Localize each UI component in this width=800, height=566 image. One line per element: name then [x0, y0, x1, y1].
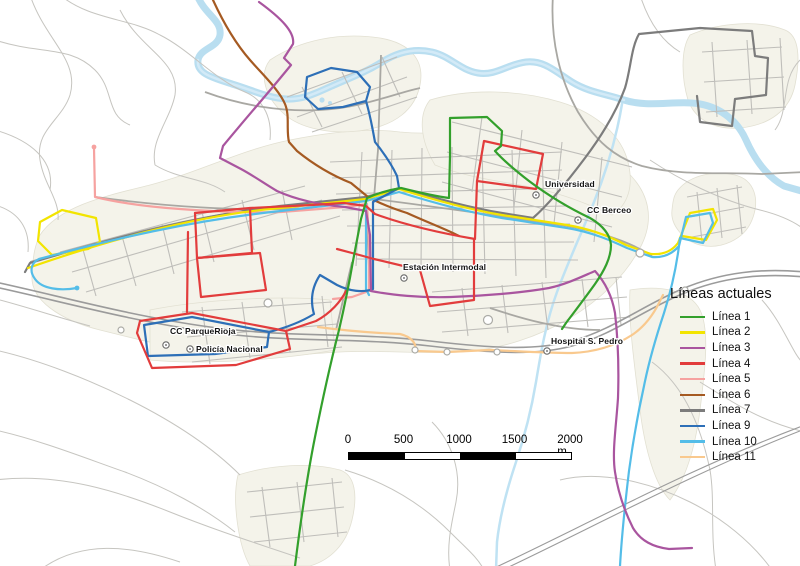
- scale-bar-graphic: [348, 452, 572, 460]
- legend-item-linea-6: Línea 6: [668, 387, 800, 403]
- map-canvas: UniversidadCC BerceoEstación IntermodalH…: [0, 0, 800, 566]
- linea-1-swatch: [680, 316, 705, 319]
- place-marker-dot-0: [535, 194, 537, 196]
- linea-4-label: Línea 4: [712, 358, 750, 370]
- legend-title: Líneas actuales: [670, 286, 800, 302]
- linea-9-swatch: [680, 425, 705, 428]
- legend-item-linea-2: Línea 2: [668, 325, 800, 341]
- scale-tick-0: 0: [345, 434, 351, 446]
- scale-bar-labels: 0500100015002000 m: [342, 434, 592, 448]
- legend-item-linea-7: Línea 7: [668, 403, 800, 419]
- place-label: Estación Intermodal: [403, 262, 486, 272]
- scale-segment-0: [349, 453, 405, 459]
- legend-item-linea-1: Línea 1: [668, 309, 800, 325]
- scale-tick-1000: 1000: [446, 434, 472, 446]
- linea-4-swatch: [680, 362, 705, 365]
- linea-3-label: Línea 3: [712, 342, 750, 354]
- scale-bar: 0500100015002000 m: [342, 434, 592, 466]
- linea-9-label: Línea 9: [712, 420, 750, 432]
- linea-10-terminus-dot: [75, 286, 80, 291]
- linea-10-label: Línea 10: [712, 436, 757, 448]
- legend-item-linea-4: Línea 4: [668, 356, 800, 372]
- linea-5-swatch: [680, 378, 705, 381]
- linea-2-swatch: [680, 331, 705, 334]
- legend-item-linea-5: Línea 5: [668, 371, 800, 387]
- place-marker-dot-5: [189, 348, 191, 350]
- linea-2-label: Línea 2: [712, 326, 750, 338]
- linea-5-label: Línea 5: [712, 373, 750, 385]
- linea-7-label: Línea 7: [712, 404, 750, 416]
- legend-item-linea-10: Línea 10: [668, 434, 800, 450]
- legend-item-linea-3: Línea 3: [668, 340, 800, 356]
- place-marker-dot-4: [165, 344, 167, 346]
- place-label: CC Berceo: [587, 205, 631, 215]
- linea-1-label: Línea 1: [712, 311, 750, 323]
- place-marker-dot-2: [403, 277, 405, 279]
- place-label: Universidad: [545, 179, 595, 189]
- scale-tick-500: 500: [394, 434, 413, 446]
- linea-4-path-5: [187, 232, 188, 312]
- linea-11-swatch: [680, 456, 705, 459]
- legend-item-linea-11: Línea 11: [668, 449, 800, 465]
- linea-5-terminus-dot: [92, 145, 97, 150]
- scale-segment-1: [405, 453, 461, 459]
- linea-3-swatch: [680, 347, 705, 350]
- scale-segment-3: [516, 453, 572, 459]
- linea-6-swatch: [680, 394, 705, 397]
- legend-items: Línea 1Línea 2Línea 3Línea 4Línea 5Línea…: [668, 309, 800, 465]
- place-marker-dot-1: [577, 219, 579, 221]
- scale-segment-2: [460, 453, 516, 459]
- legend: Líneas actuales Línea 1Línea 2Línea 3Lín…: [668, 286, 800, 465]
- linea-6-label: Línea 6: [712, 389, 750, 401]
- place-label: Hospital S. Pedro: [551, 336, 623, 346]
- place-label: Policía Nacional: [196, 344, 263, 354]
- linea-11-label: Línea 11: [712, 451, 756, 463]
- scale-tick-1500: 1500: [502, 434, 528, 446]
- map-svg: UniversidadCC BerceoEstación IntermodalH…: [0, 0, 800, 566]
- linea-7-swatch: [680, 409, 705, 412]
- linea-10-swatch: [680, 440, 705, 443]
- place-marker-dot-3: [546, 350, 548, 352]
- place-label: CC ParqueRioja: [170, 326, 236, 336]
- legend-item-linea-9: Línea 9: [668, 418, 800, 434]
